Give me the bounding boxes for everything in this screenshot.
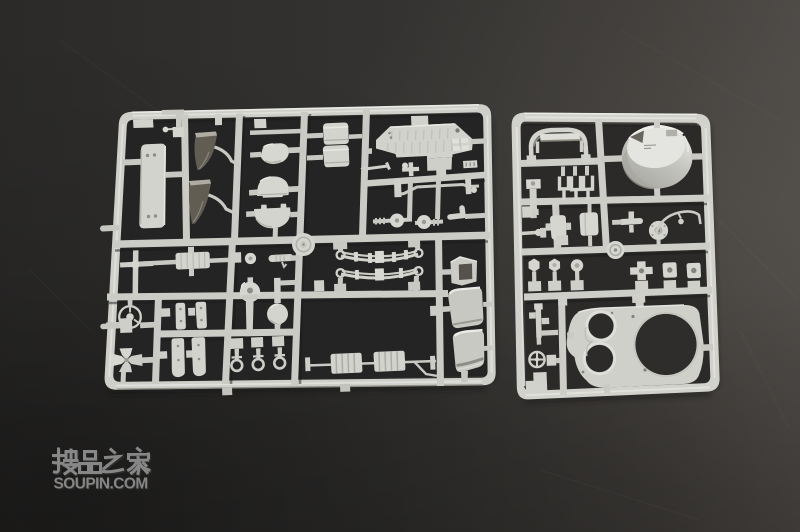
svg-text:SOUPIN.COM: SOUPIN.COM xyxy=(54,475,148,492)
